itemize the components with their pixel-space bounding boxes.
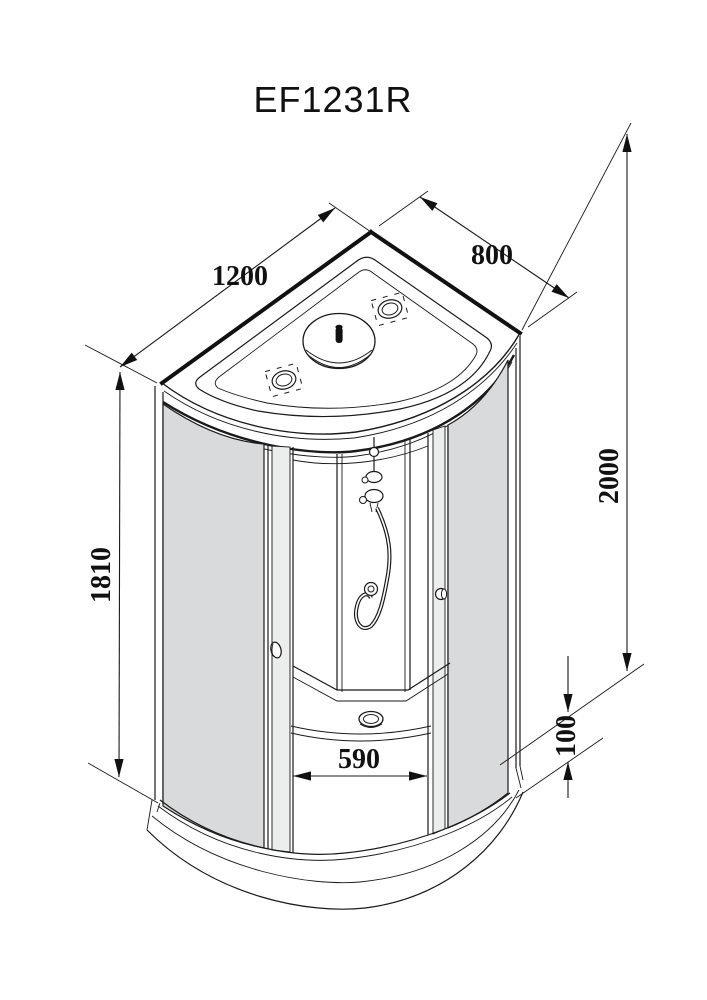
dim-depth-ext-right: [528, 292, 577, 327]
arrowhead: [409, 771, 427, 780]
arrowhead: [622, 653, 631, 671]
right-door-knob: [436, 589, 447, 600]
tray-curb: [291, 663, 450, 741]
arrowhead: [417, 193, 437, 211]
drain: [359, 712, 383, 728]
hand-shower: [356, 437, 390, 628]
left-glass-panel: [163, 404, 264, 848]
dim-height-label: 2000: [594, 448, 625, 504]
right-door-edge-strip: [433, 426, 445, 834]
arrowhead: [114, 759, 123, 777]
dim-entry-width-label: 590: [338, 744, 380, 775]
technical-drawing-page: EF1231R: [0, 0, 707, 1000]
arrowhead: [552, 284, 572, 302]
page-title: EF1231R: [253, 79, 412, 120]
arrowhead: [563, 694, 572, 712]
dome-knob: [336, 327, 343, 343]
dim-depth-ext-left: [379, 191, 428, 226]
arrowhead: [115, 372, 124, 390]
dim-height-ext-top: [522, 123, 631, 330]
cabin-interior: [291, 437, 450, 741]
dim-glass-height-label: 1810: [86, 547, 117, 603]
shower-handset: [365, 583, 378, 596]
dim-tray-height-label: 100: [551, 715, 582, 757]
arrowhead: [117, 353, 137, 371]
shower-cabin-drawing: EF1231R: [0, 0, 707, 1000]
dim-height: 2000: [500, 123, 644, 765]
roof-underside-line: [293, 446, 428, 464]
ventilation-dome: [303, 314, 375, 369]
dim-glass-height: 1810: [86, 372, 158, 803]
dim-tray-height: 100: [516, 656, 603, 798]
tray-right-corner: [516, 766, 523, 788]
dim-width-ext-right: [329, 203, 371, 232]
dim-width-label: 1200: [212, 261, 268, 292]
tray-left-corner: [147, 800, 160, 830]
dim-glass-height-ext-bottom: [88, 763, 158, 803]
right-glass-panel: [448, 360, 508, 828]
dim-depth-label: 800: [471, 240, 513, 271]
dim-entry-width: 590: [293, 744, 427, 781]
arrowhead: [293, 771, 311, 780]
